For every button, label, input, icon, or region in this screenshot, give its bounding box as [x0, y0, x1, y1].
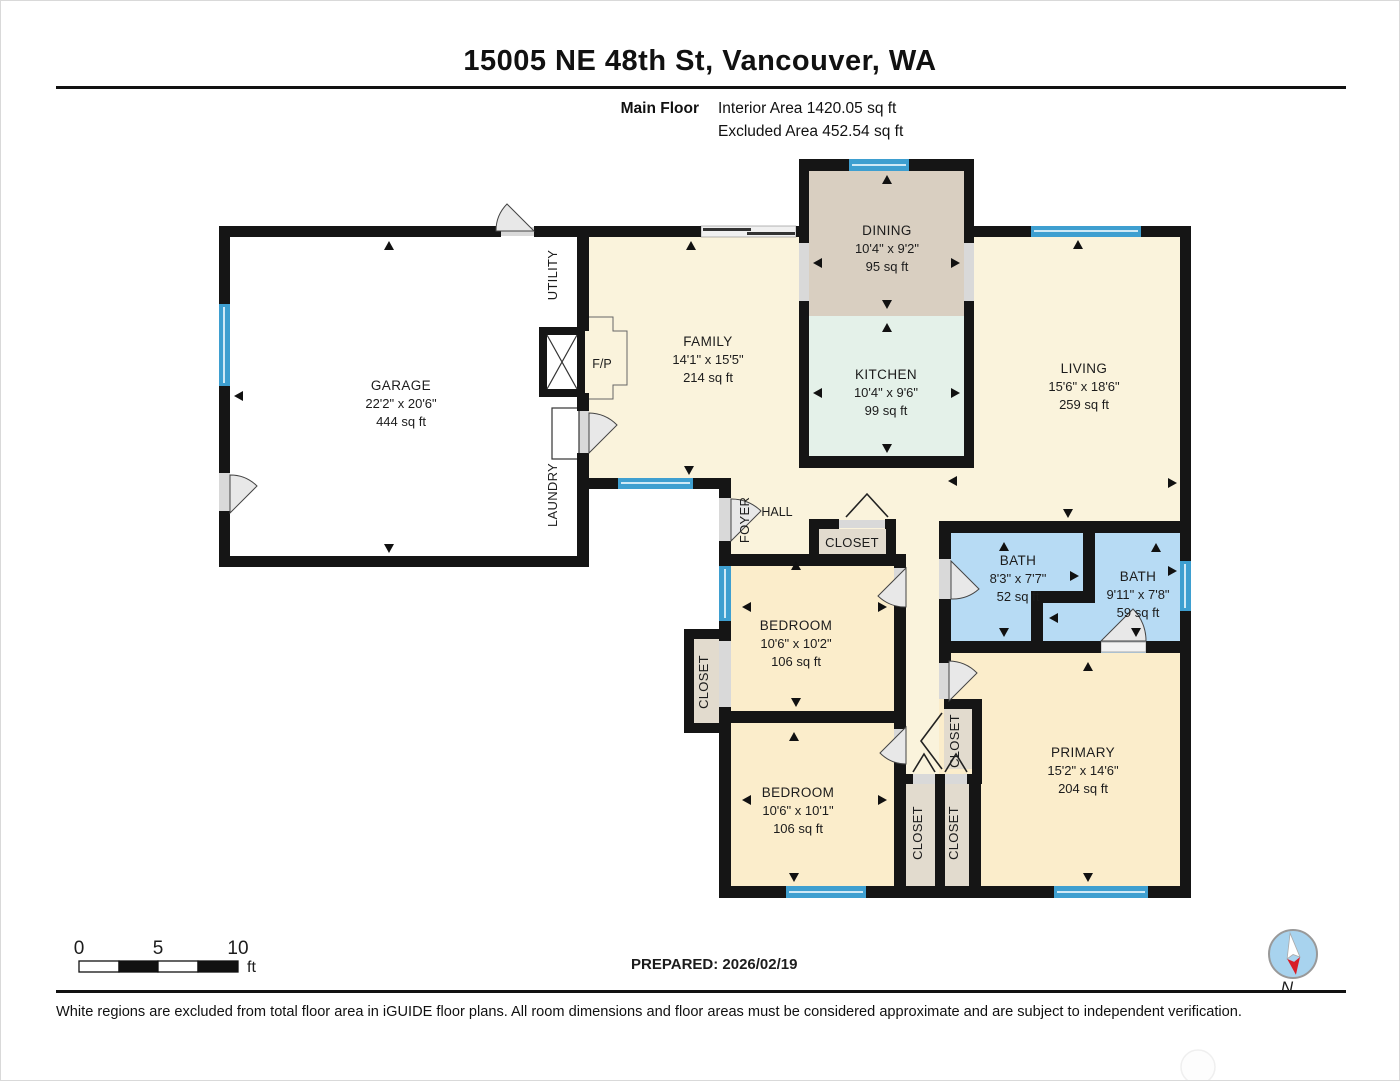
bedroom2-area: 106 sq ft [773, 821, 823, 836]
primary-dims: 15'2" x 14'6" [1047, 763, 1119, 778]
sliding-door [701, 226, 796, 237]
bedroom2-name: BEDROOM [762, 785, 835, 800]
bath2-dims: 9'11" x 7'8" [1106, 587, 1169, 602]
primary-name: PRIMARY [1051, 745, 1115, 760]
bath2-area: 59 sq ft [1117, 605, 1160, 620]
bedroom1-area: 106 sq ft [771, 654, 821, 669]
prepared-date: PREPARED: 2026/02/19 [631, 956, 797, 973]
laundry-appliance [552, 408, 579, 459]
hall-label: HALL [761, 505, 792, 519]
footer-disclaimer: White regions are excluded from total fl… [56, 1004, 1242, 1020]
dining-dims: 10'4" x 9'2" [855, 241, 919, 256]
living-dims: 15'6" x 18'6" [1048, 379, 1120, 394]
kitchen-name: KITCHEN [855, 367, 917, 382]
floor-plan: GARAGE 22'2" x 20'6" 444 sq ft FAMILY 14… [1, 1, 1400, 1081]
living-area: 259 sq ft [1059, 397, 1109, 412]
footer-divider [56, 990, 1346, 993]
bath1-area: 52 sq ft [997, 589, 1040, 604]
floorplan-page: 15005 NE 48th St, Vancouver, WA Main Flo… [0, 0, 1400, 1081]
kitchen-area: 99 sq ft [865, 403, 908, 418]
garage-area: 444 sq ft [376, 414, 426, 429]
family-name: FAMILY [683, 334, 732, 349]
bedroom2-dims: 10'6" x 10'1" [762, 803, 834, 818]
scale-tick-5: 5 [153, 938, 164, 959]
utility-label: UTILITY [545, 250, 560, 301]
watermark-circle [1181, 1050, 1215, 1081]
bedroom1-name: BEDROOM [760, 618, 833, 633]
dining-area: 95 sq ft [866, 259, 909, 274]
scale-bar: 0 5 10 ft [74, 938, 257, 976]
compass-icon: N [1269, 930, 1317, 997]
primary-area: 204 sq ft [1058, 781, 1108, 796]
dining-name: DINING [862, 223, 912, 238]
closet-label-bedroom1-top: CLOSET [825, 535, 879, 550]
scale-tick-10: 10 [227, 938, 248, 959]
closet-label-bottom-left: CLOSET [910, 806, 925, 860]
bath2-name: BATH [1120, 569, 1157, 584]
scale-tick-0: 0 [74, 938, 85, 959]
family-area: 214 sq ft [683, 370, 733, 385]
laundry-label: LAUNDRY [545, 463, 560, 527]
bath1-dims: 8'3" x 7'7" [990, 571, 1047, 586]
closet-label-hall: CLOSET [947, 714, 962, 768]
bedroom1-dims: 10'6" x 10'2" [760, 636, 832, 651]
bath1-name: BATH [1000, 553, 1037, 568]
family-dims: 14'1" x 15'5" [672, 352, 744, 367]
living-name: LIVING [1061, 361, 1108, 376]
foyer-label: FOYER [737, 497, 752, 543]
scale-unit: ft [247, 959, 256, 976]
fireplace-label: F/P [592, 357, 611, 371]
garage-dims: 22'2" x 20'6" [365, 396, 437, 411]
closet-label-bedroom1-left: CLOSET [696, 655, 711, 709]
garage-name: GARAGE [371, 378, 431, 393]
kitchen-dims: 10'4" x 9'6" [854, 385, 918, 400]
compass-north-label: N [1281, 978, 1294, 997]
closet-label-bottom-right: CLOSET [946, 806, 961, 860]
